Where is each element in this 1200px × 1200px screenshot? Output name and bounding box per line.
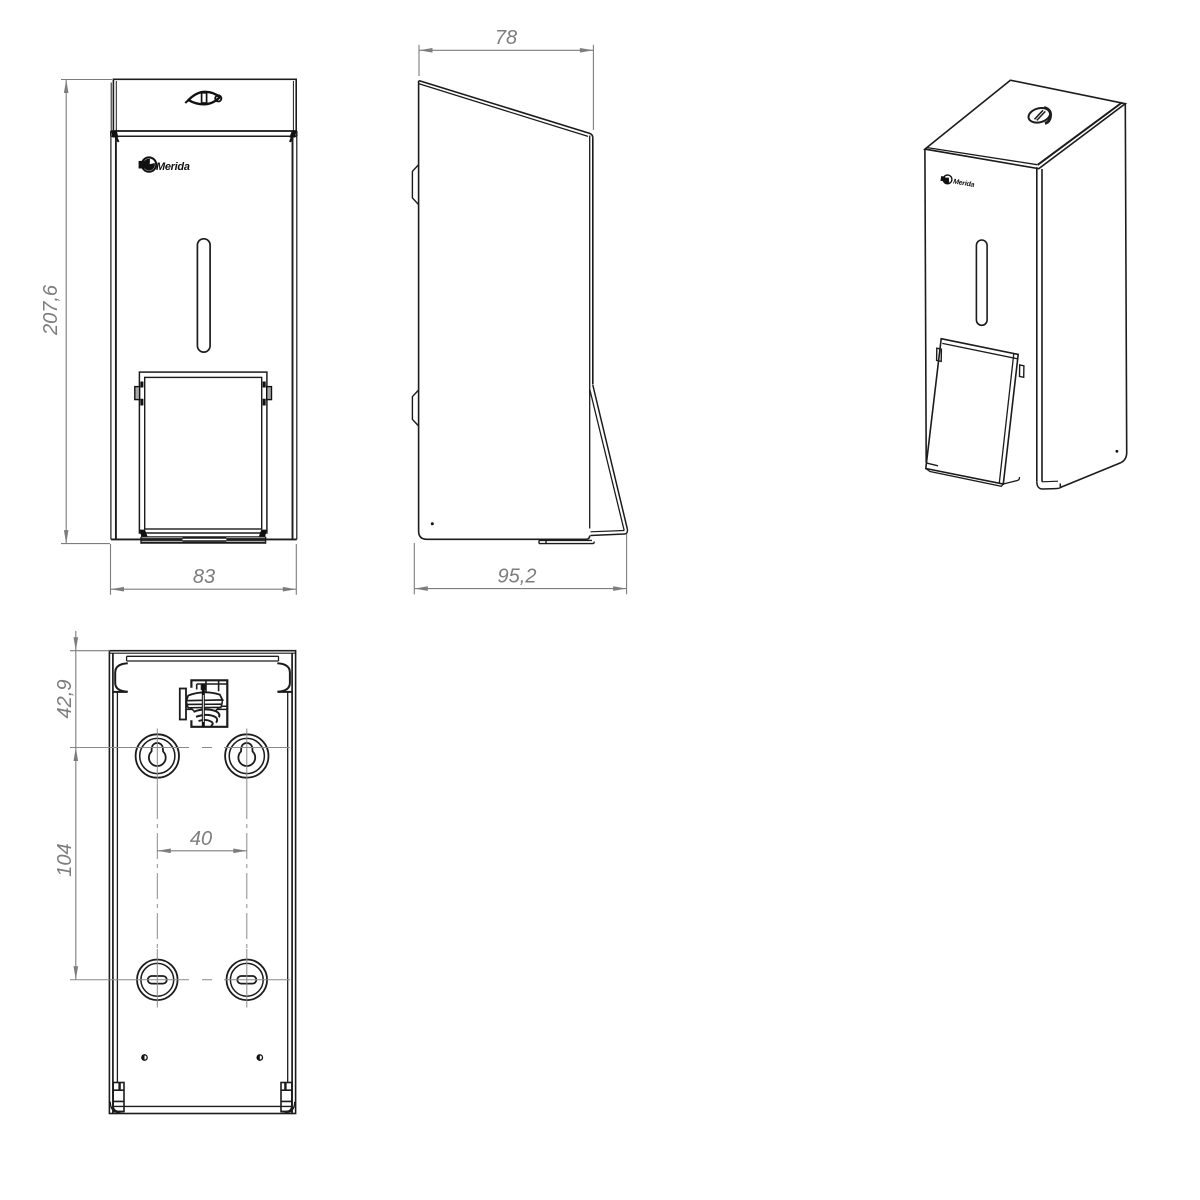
svg-text:95,2: 95,2 — [498, 565, 537, 587]
svg-text:40: 40 — [190, 828, 212, 850]
svg-text:207,6: 207,6 — [40, 284, 62, 336]
svg-text:78: 78 — [495, 27, 517, 49]
svg-text:Merida: Merida — [156, 161, 190, 173]
svg-text:83: 83 — [193, 566, 215, 588]
svg-text:Merida: Merida — [953, 178, 976, 188]
svg-text:104: 104 — [54, 843, 76, 876]
svg-text:42,9: 42,9 — [54, 680, 76, 719]
